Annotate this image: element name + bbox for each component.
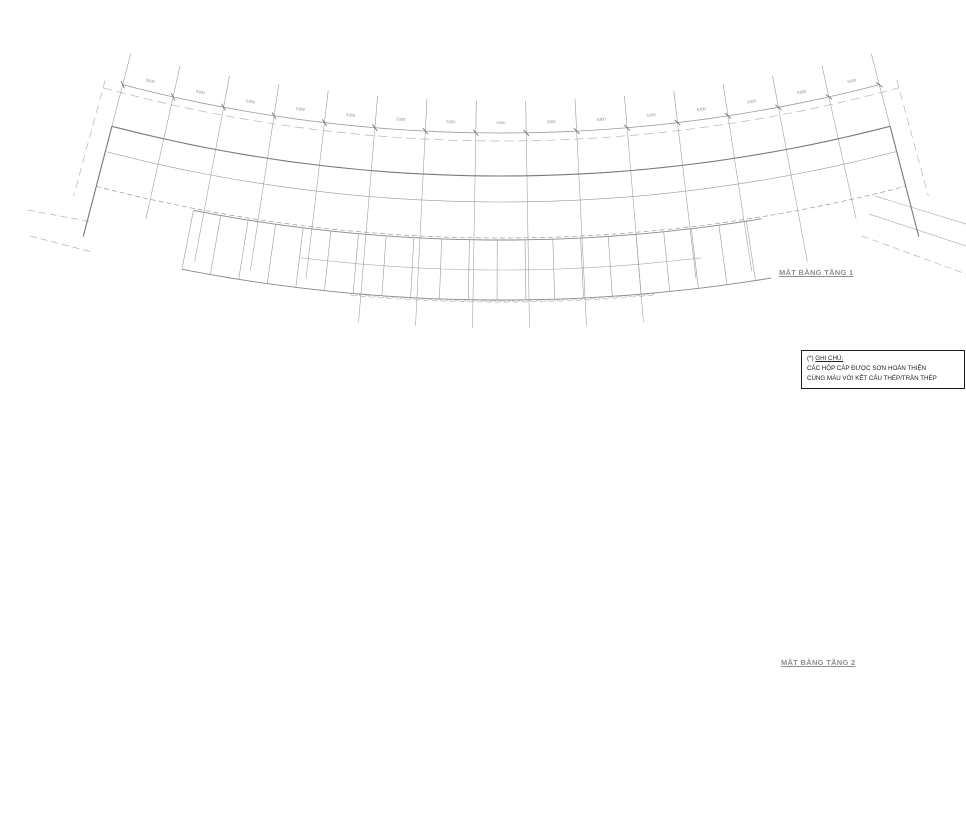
plan2-title: MẶT BẰNG TẦNG 2 bbox=[781, 658, 856, 667]
note-title: GHI CHÚ: bbox=[815, 355, 843, 362]
bay-dimension: 5300 bbox=[346, 112, 356, 118]
note-box: (*) GHI CHÚ: CÁC HỘP CÁP ĐƯỢC SƠN HOÀN T… bbox=[801, 350, 965, 389]
note-line-2: CÙNG MÀU VỚI KẾT CẤU THÉP/TRẦN THÉP bbox=[807, 374, 959, 384]
grid-lines bbox=[91, 54, 910, 328]
bay-dimension: 5300 bbox=[547, 119, 557, 124]
bay-dimension: 5300 bbox=[145, 77, 156, 84]
bay-dimension: 5300 bbox=[797, 88, 807, 95]
plan1-title: MẶT BẰNG TẦNG 1 bbox=[779, 268, 854, 277]
bay-dimension: 5300 bbox=[396, 116, 406, 122]
bay-dimension: 5300 bbox=[246, 98, 256, 105]
floorplan-canvas: 5300530053005300530053005300530053005300… bbox=[0, 0, 966, 813]
note-line-1: CÁC HỘP CÁP ĐƯỢC SƠN HOÀN THIỆN bbox=[807, 364, 959, 374]
building-shell bbox=[83, 126, 919, 238]
floor-plan-tang-1: 5300530053005300530053005300530053005300… bbox=[28, 54, 966, 328]
bay-dimension: 5300 bbox=[647, 112, 657, 118]
bay-dimension: 5300 bbox=[697, 106, 707, 112]
bay-dimension: 5300 bbox=[497, 120, 507, 125]
bay-dimension: 5300 bbox=[847, 77, 858, 84]
bay-dimension: 5300 bbox=[296, 106, 306, 112]
drawing-sheet: 5300530053005300530053005300530053005300… bbox=[0, 0, 966, 813]
rooms bbox=[182, 210, 771, 302]
bay-dimension: 5300 bbox=[196, 89, 206, 96]
bay-dimension: 5300 bbox=[747, 98, 757, 105]
bay-dimension: 5300 bbox=[446, 119, 456, 124]
note-heading: (*) GHI CHÚ: bbox=[807, 354, 959, 364]
bay-dimension: 5300 bbox=[597, 116, 607, 122]
dimension-arc: 5300530053005300530053005300530053005300… bbox=[121, 77, 883, 136]
